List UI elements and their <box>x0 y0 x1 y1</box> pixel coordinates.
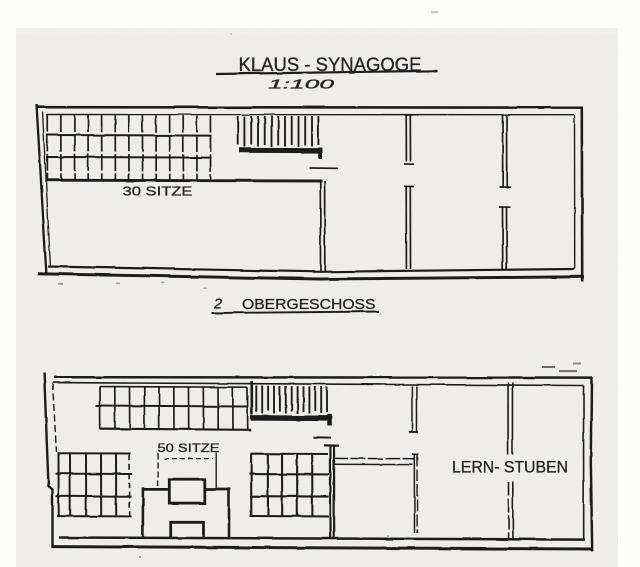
svg-text:1:100: 1:100 <box>268 78 334 92</box>
svg-text:OBERGESCHOSS: OBERGESCHOSS <box>242 297 376 313</box>
svg-text:KLAUS - SYNAGOGE: KLAUS - SYNAGOGE <box>239 55 422 76</box>
svg-text:LERN- STUBEN: LERN- STUBEN <box>452 459 568 477</box>
svg-text:30 SITZE: 30 SITZE <box>123 184 193 199</box>
svg-text:50 SITZE: 50 SITZE <box>158 441 220 455</box>
svg-text:2: 2 <box>213 297 222 313</box>
